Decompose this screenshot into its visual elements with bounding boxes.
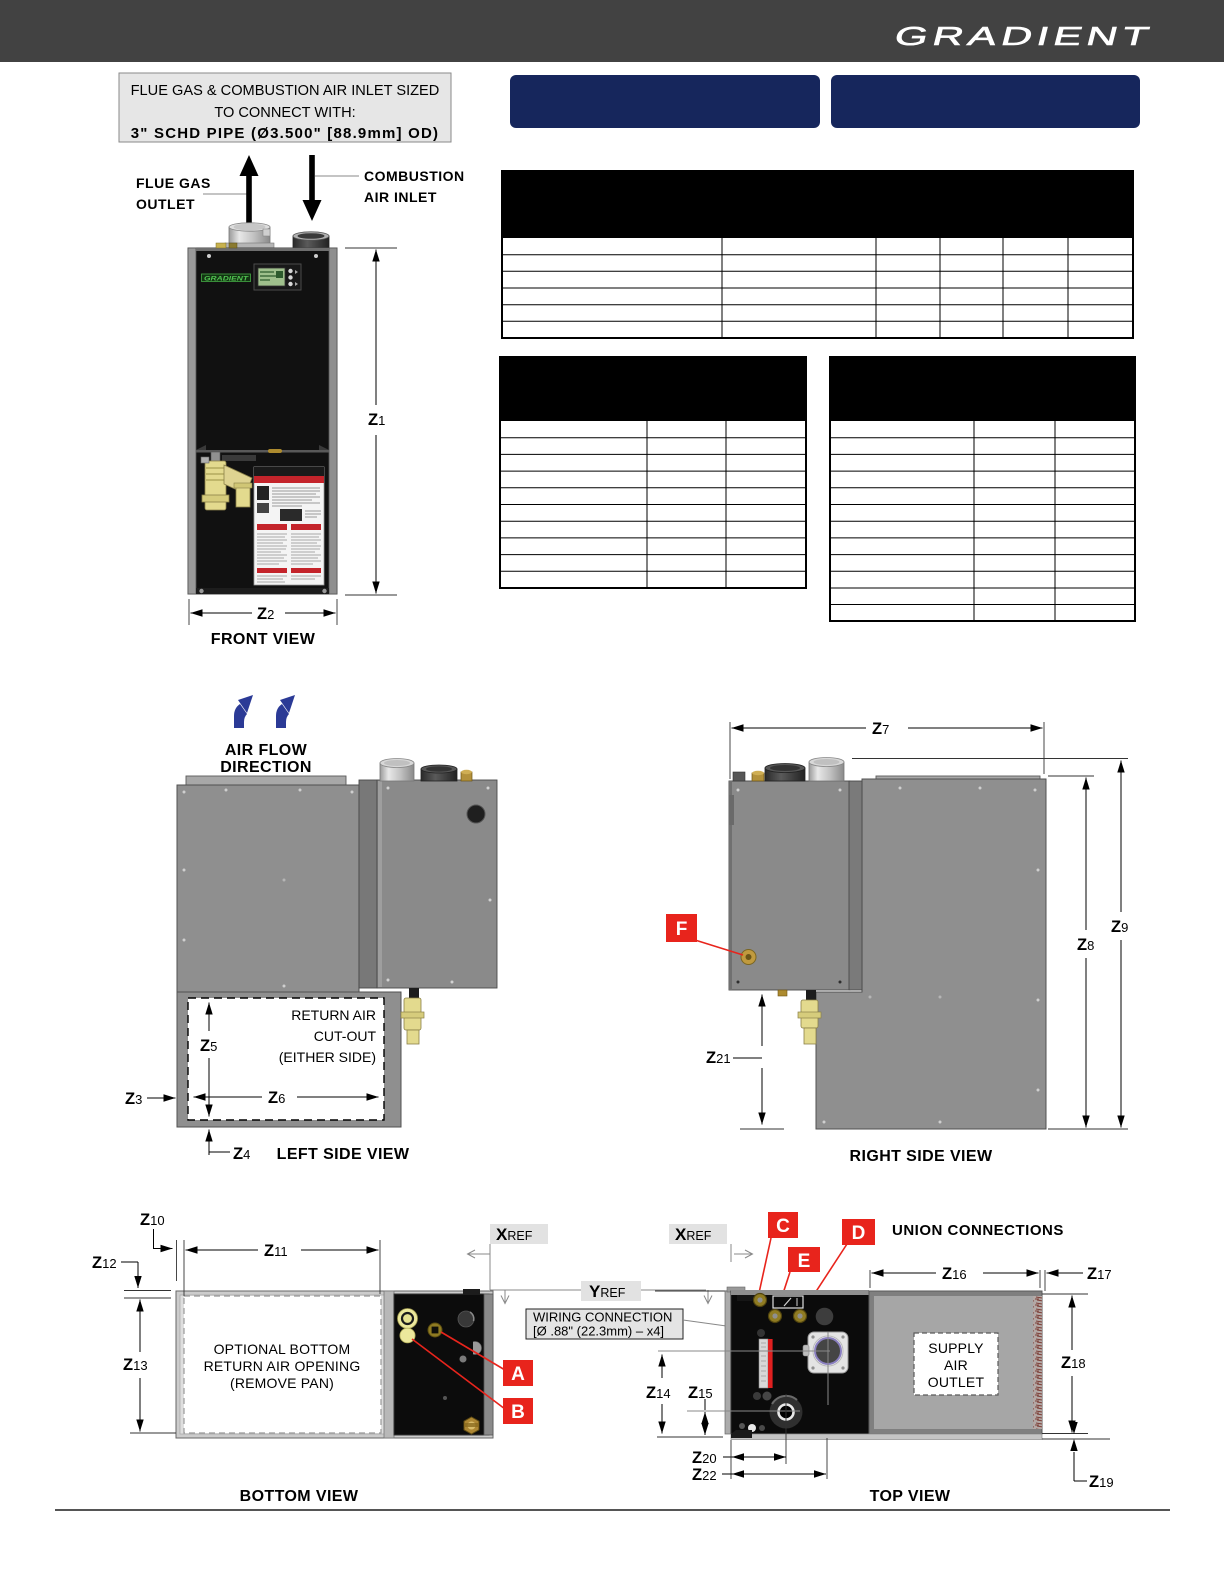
svg-text:AIR FLOW: AIR FLOW: [225, 742, 308, 759]
svg-text:COMBUSTION: COMBUSTION: [364, 168, 465, 184]
svg-text:GRADIENT: GRADIENT: [204, 275, 249, 282]
svg-text:Z1: Z1: [368, 411, 385, 429]
svg-text:B: B: [511, 1402, 525, 1423]
svg-text:RIGHT SIDE VIEW: RIGHT SIDE VIEW: [850, 1148, 993, 1165]
svg-text:Z20: Z20: [692, 1449, 717, 1467]
svg-text:CUT-OUT: CUT-OUT: [314, 1028, 377, 1044]
svg-text:Z19: Z19: [1089, 1473, 1114, 1491]
svg-text:GRADIENT: GRADIENT: [892, 21, 1157, 51]
svg-text:F: F: [676, 919, 688, 940]
svg-text:FLUE GAS & COMBUSTION AIR INLE: FLUE GAS & COMBUSTION AIR INLET SIZED: [131, 83, 440, 99]
svg-text:FLUE GAS: FLUE GAS: [136, 175, 211, 191]
svg-text:SUPPLY: SUPPLY: [928, 1340, 984, 1356]
svg-text:Z2: Z2: [257, 605, 274, 623]
svg-text:DIRECTION: DIRECTION: [220, 759, 312, 776]
svg-text:AIR: AIR: [944, 1357, 968, 1373]
svg-text:Z15: Z15: [688, 1384, 713, 1402]
svg-text:TOP VIEW: TOP VIEW: [870, 1488, 951, 1505]
svg-text:3" SCHD PIPE (Ø3.500" [88.9mm]: 3" SCHD PIPE (Ø3.500" [88.9mm] OD): [131, 125, 439, 142]
svg-text:Z3: Z3: [125, 1090, 142, 1108]
svg-text:Z21: Z21: [706, 1049, 731, 1067]
svg-text:WIRING CONNECTION: WIRING CONNECTION: [533, 1310, 672, 1325]
svg-text:Z8: Z8: [1077, 936, 1094, 954]
svg-text:Z7: Z7: [872, 720, 889, 738]
svg-text:OUTLET: OUTLET: [928, 1374, 985, 1390]
svg-text:Z13: Z13: [123, 1356, 148, 1374]
svg-text:RETURN AIR: RETURN AIR: [291, 1007, 376, 1023]
svg-text:Z4: Z4: [233, 1145, 250, 1163]
svg-text:A: A: [511, 1364, 525, 1385]
svg-text:Z17: Z17: [1087, 1265, 1112, 1283]
svg-text:Z6: Z6: [268, 1089, 285, 1107]
svg-text:FRONT VIEW: FRONT VIEW: [211, 631, 316, 648]
svg-text:AIR INLET: AIR INLET: [364, 189, 437, 205]
svg-text:C: C: [776, 1216, 790, 1237]
svg-text:Z12: Z12: [92, 1254, 117, 1272]
svg-text:(REMOVE PAN): (REMOVE PAN): [230, 1375, 334, 1391]
svg-text:BOTTOM VIEW: BOTTOM VIEW: [240, 1488, 359, 1505]
svg-text:TO CONNECT WITH:: TO CONNECT WITH:: [214, 105, 355, 121]
svg-text:Z10: Z10: [140, 1211, 165, 1229]
svg-text:Z11: Z11: [264, 1242, 288, 1260]
svg-text:Z9: Z9: [1111, 918, 1128, 936]
svg-text:(EITHER SIDE): (EITHER SIDE): [279, 1049, 376, 1065]
svg-text:D: D: [852, 1223, 866, 1244]
svg-text:Z14: Z14: [646, 1384, 671, 1402]
svg-text:Z16: Z16: [942, 1265, 967, 1283]
svg-text:Z22: Z22: [692, 1466, 717, 1484]
svg-text:RETURN AIR OPENING: RETURN AIR OPENING: [204, 1358, 361, 1374]
svg-text:[Ø .88" (22.3mm) – x4]: [Ø .88" (22.3mm) – x4]: [533, 1324, 664, 1339]
svg-text:Z5: Z5: [200, 1037, 217, 1055]
svg-text:OPTIONAL BOTTOM: OPTIONAL BOTTOM: [214, 1341, 351, 1357]
svg-text:UNION CONNECTIONS: UNION CONNECTIONS: [892, 1222, 1064, 1239]
svg-text:LEFT SIDE VIEW: LEFT SIDE VIEW: [277, 1146, 410, 1163]
svg-text:Z18: Z18: [1061, 1354, 1086, 1372]
svg-text:OUTLET: OUTLET: [136, 196, 195, 212]
svg-text:E: E: [798, 1251, 811, 1272]
